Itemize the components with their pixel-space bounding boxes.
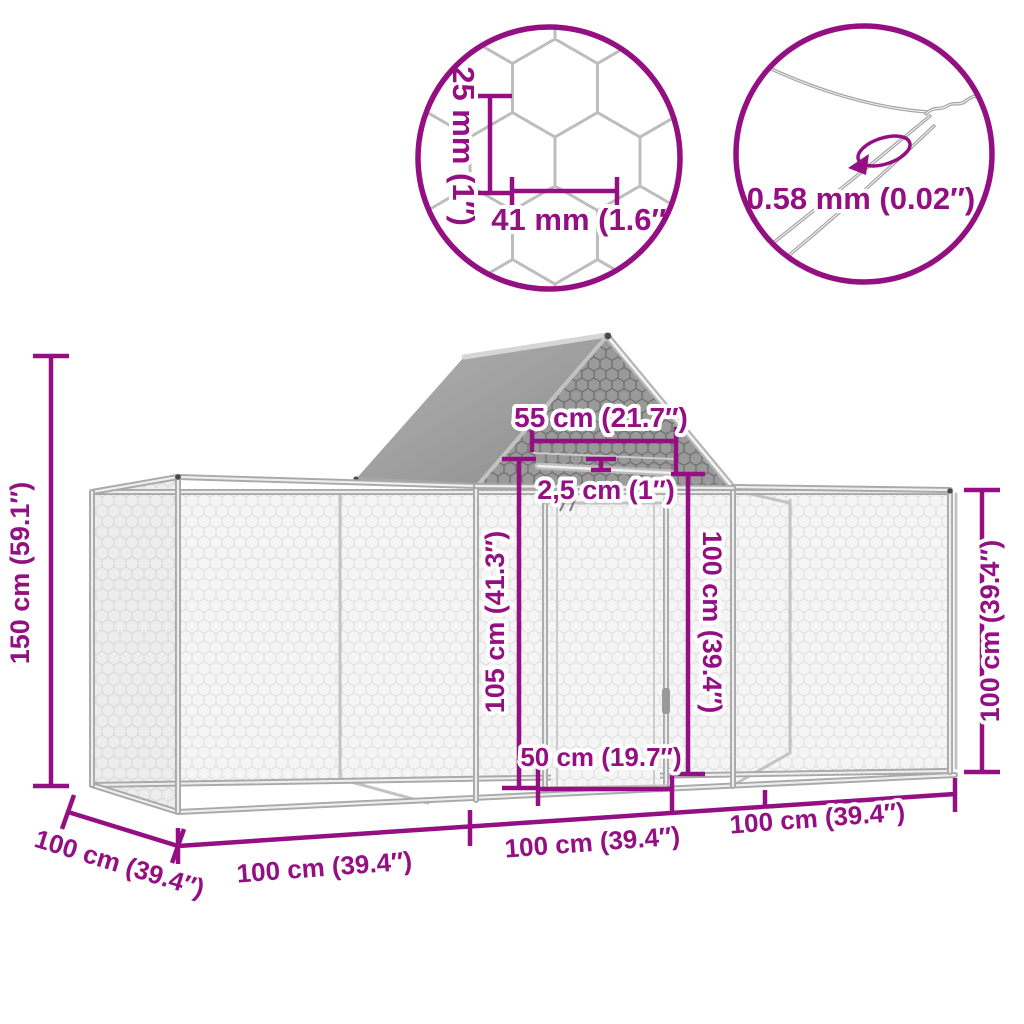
diagram-canvas: 150 cm (59.1″) 55 cm (21.7″) 2,5 cm (1″)…: [0, 0, 1024, 1024]
tube-diameter-label: 2,5 cm (1″): [537, 475, 675, 505]
twisted-wires: [744, 60, 1000, 276]
wire-gauge-label: 0.58 mm (0.02″): [747, 181, 976, 216]
mesh-detail-circle: 25 mm (1″) 41 mm (1.6″): [416, 25, 682, 291]
rotation-marker: [848, 130, 914, 175]
total-height-label: 150 cm (59.1″): [5, 482, 35, 665]
door-height-label: 105 cm (41.3″): [480, 531, 510, 714]
bottom-segment-2-label: 100 cm (39.4″): [504, 820, 682, 863]
wire-detail-ring: [736, 26, 992, 282]
wire-detail-circle: 0.58 mm (0.02″): [736, 26, 1000, 282]
bottom-segment-1-label: 100 cm (39.4″): [236, 845, 414, 888]
side-wall-height-dimension: 100 cm (39.4″): [964, 490, 1005, 772]
total-height-dimension: 150 cm (59.1″): [5, 356, 69, 786]
bottom-segment-3-label: 100 cm (39.4″): [729, 796, 907, 839]
ridge-width-label: 55 cm (21.7″): [514, 402, 688, 433]
product-dimension-diagram: 150 cm (59.1″) 55 cm (21.7″) 2,5 cm (1″)…: [0, 0, 1024, 1024]
side-wall-height-label: 100 cm (39.4″): [975, 540, 1005, 723]
door-width-label: 50 cm (19.7″): [520, 742, 681, 772]
door-opening-height-label: 100 cm (39.4″): [697, 531, 727, 714]
mesh-cell-width-label: 41 mm (1.6″): [491, 202, 676, 237]
door-latch: [662, 688, 670, 714]
mesh-cell-height-label: 25 mm (1″): [446, 66, 481, 226]
